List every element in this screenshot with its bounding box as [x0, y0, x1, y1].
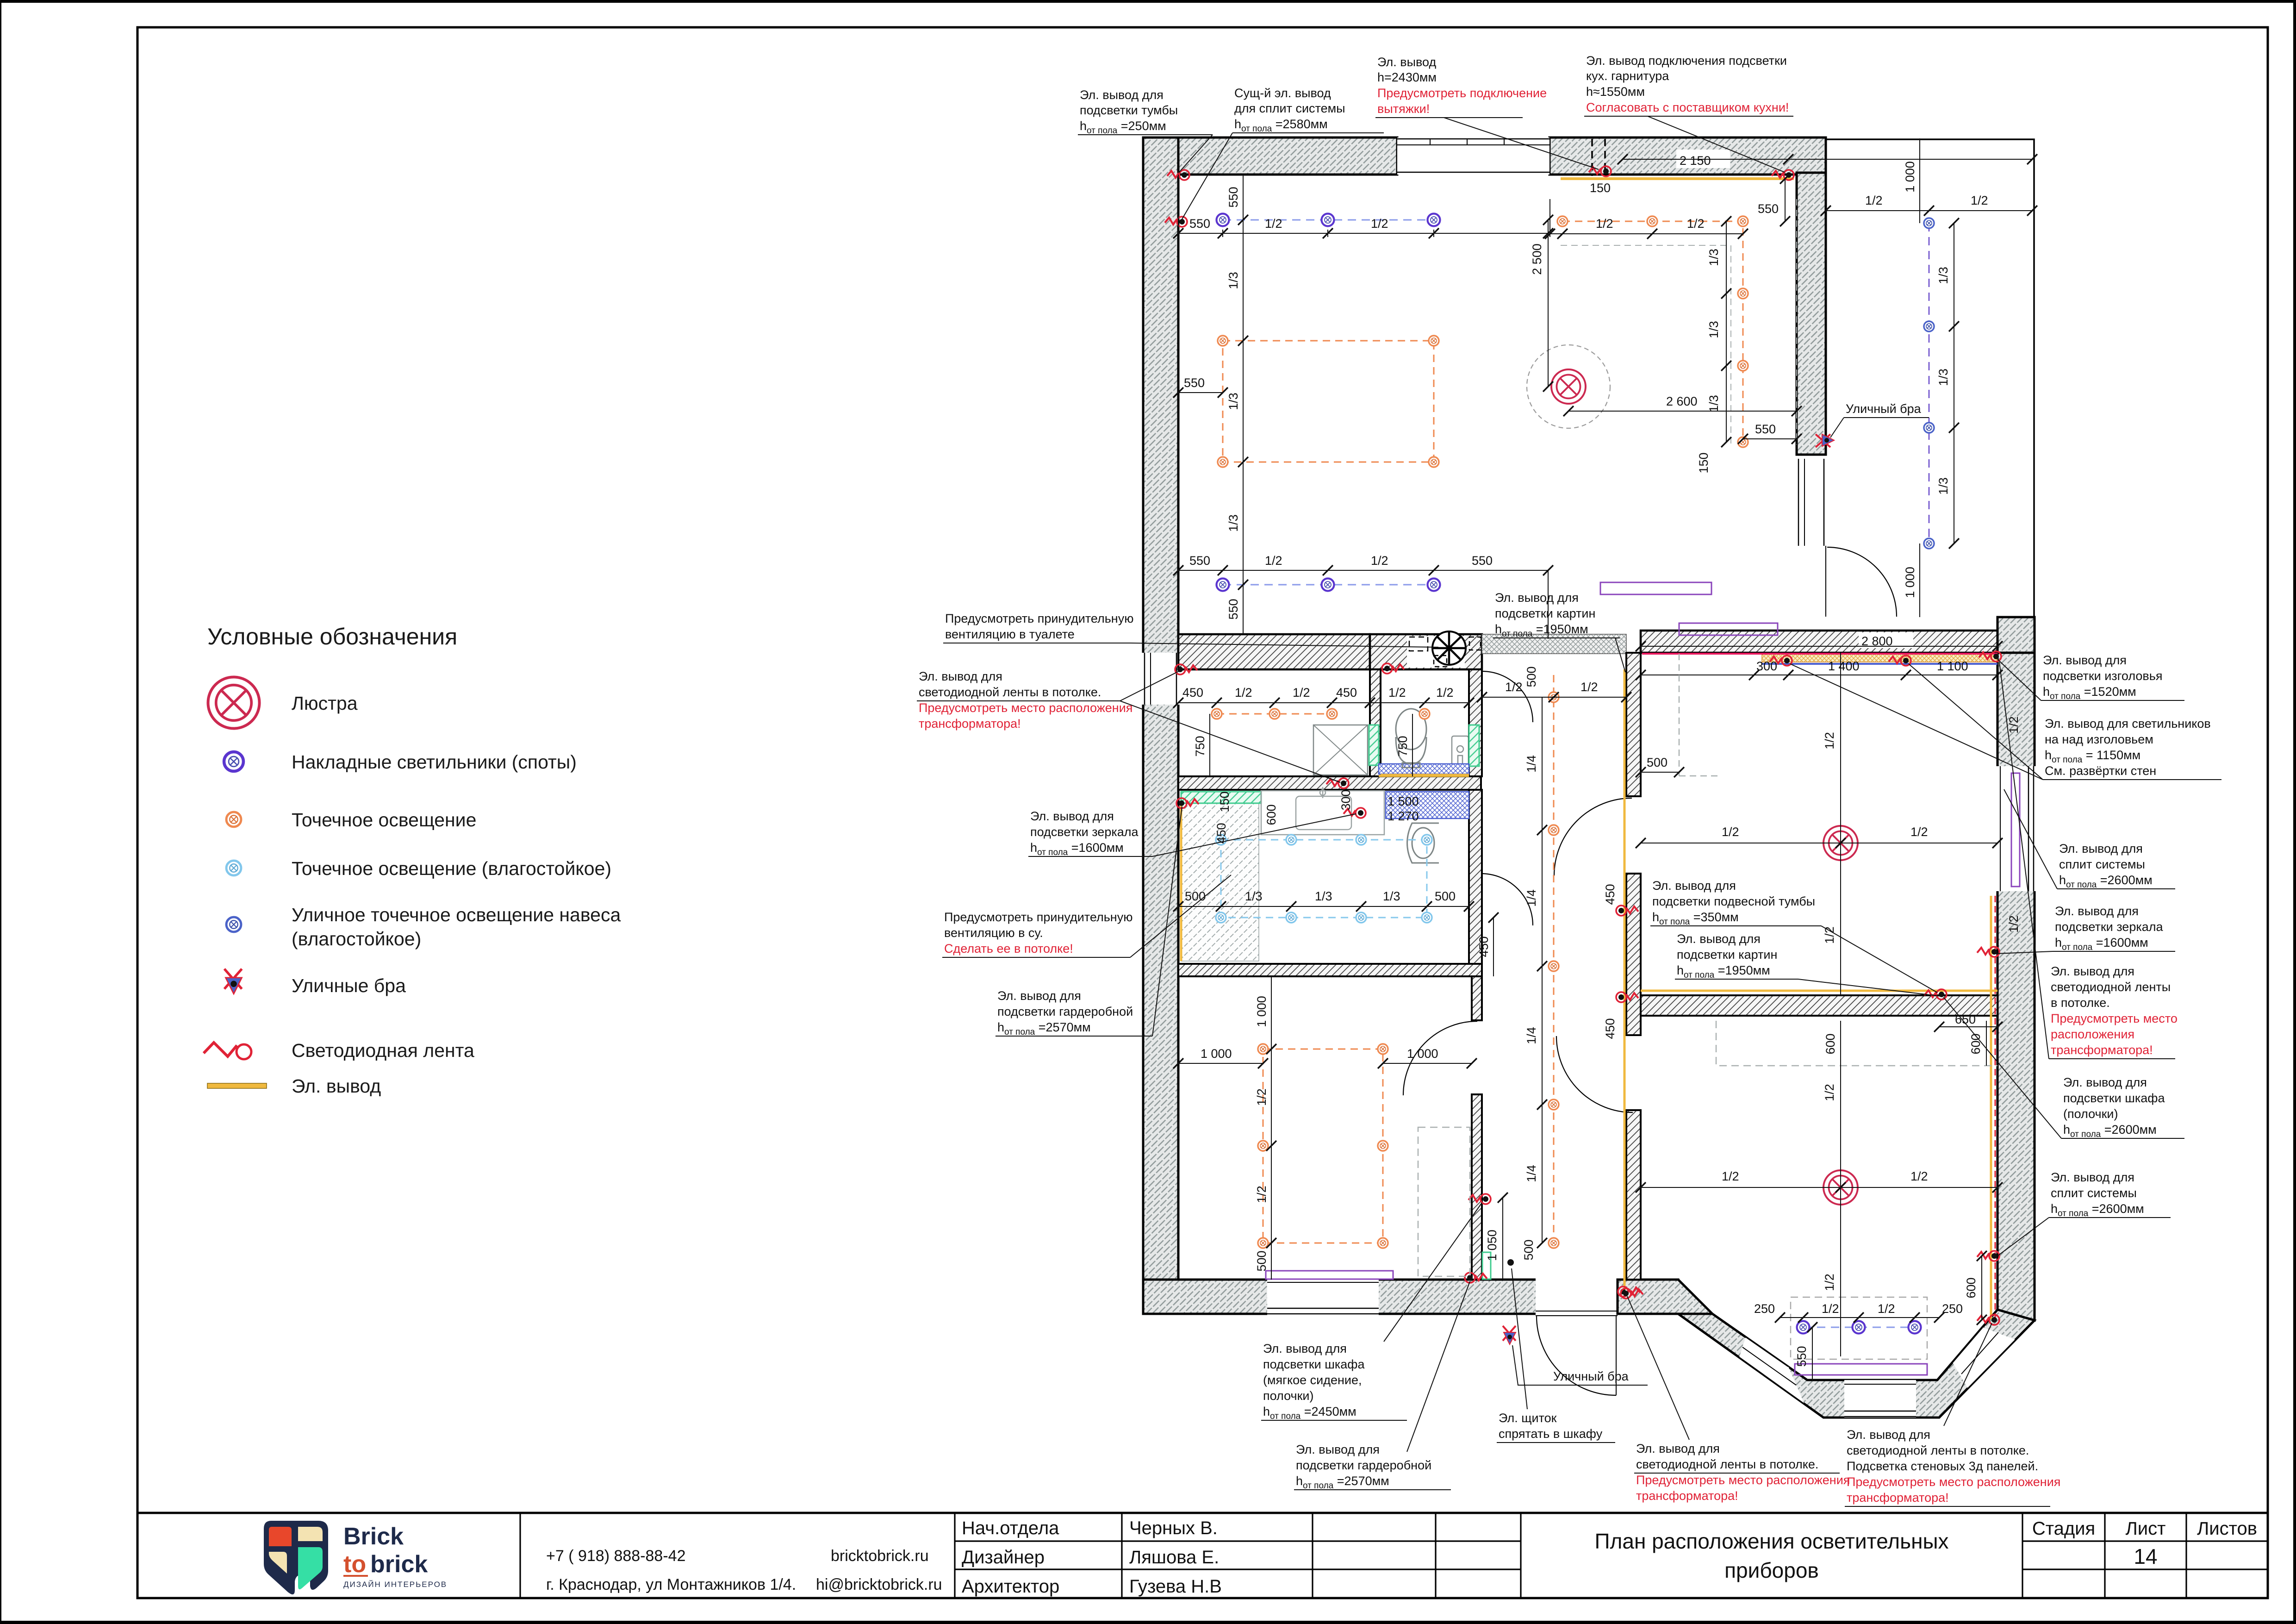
svg-text:Светодиодная лента: Светодиодная лента [292, 1040, 474, 1061]
svg-text:Эл. вывод для: Эл. вывод для [1652, 879, 1736, 893]
svg-text:150: 150 [1590, 181, 1611, 195]
svg-text:1 100: 1 100 [1937, 659, 1968, 673]
svg-text:Гузева Н.В: Гузева Н.В [1129, 1576, 1222, 1597]
svg-text:1/4: 1/4 [1524, 1027, 1538, 1044]
svg-text:на над изголовьем: на над изголовьем [2045, 732, 2153, 746]
svg-text:1/2: 1/2 [1265, 217, 1282, 231]
svg-text:Сущ-й эл. вывод: Сущ-й эл. вывод [1234, 86, 1331, 100]
svg-text:1/2: 1/2 [1971, 194, 1988, 207]
svg-text:500: 500 [1255, 1250, 1269, 1271]
svg-text:500: 500 [1435, 889, 1456, 903]
svg-text:300: 300 [1756, 659, 1777, 673]
svg-text:в потолке.: в потолке. [2051, 996, 2110, 1010]
svg-text:1 000: 1 000 [1201, 1047, 1232, 1061]
svg-text:Точечное освещение: Точечное освещение [292, 809, 476, 831]
svg-text:Листов: Листов [2197, 1518, 2257, 1539]
svg-text:1 000: 1 000 [1903, 161, 1917, 193]
svg-text:1/3: 1/3 [1707, 249, 1721, 266]
svg-text:ДИЗАЙН ИНТЕРЬЕРОВ: ДИЗАЙН ИНТЕРЬЕРОВ [343, 1580, 447, 1589]
svg-text:полочки): полочки) [1263, 1389, 1313, 1403]
svg-text:трансформатора!: трансформатора! [1847, 1491, 1949, 1505]
svg-text:Лист: Лист [2126, 1518, 2166, 1539]
svg-text:150: 150 [1697, 452, 1711, 473]
svg-text:Черных В.: Черных В. [1129, 1518, 1218, 1538]
svg-text:750: 750 [1396, 736, 1410, 756]
svg-text:500: 500 [1524, 666, 1538, 687]
svg-text:1 400: 1 400 [1828, 659, 1860, 673]
svg-text:1/2: 1/2 [1235, 686, 1252, 700]
svg-text:250: 250 [1942, 1302, 1963, 1316]
svg-text:трансформатора!: трансформатора! [919, 717, 1021, 731]
svg-text:Уличный бра: Уличный бра [1846, 402, 1922, 416]
svg-text:300: 300 [1339, 789, 1353, 810]
svg-text:1 500: 1 500 [1388, 794, 1419, 808]
svg-text:Точечное освещение (влагостойк: Точечное освещение (влагостойкое) [292, 858, 611, 879]
svg-text:Эл. вывод для светильников: Эл. вывод для светильников [2045, 717, 2211, 731]
svg-text:500: 500 [1522, 1239, 1536, 1260]
svg-text:2 800: 2 800 [1861, 634, 1893, 648]
svg-text:(мягкое сидение,: (мягкое сидение, [1263, 1373, 1362, 1387]
svg-text:(полочки): (полочки) [2063, 1107, 2118, 1121]
svg-text:1/2: 1/2 [1371, 217, 1388, 231]
svg-text:Эл. вывод для: Эл. вывод для [2063, 1075, 2147, 1089]
svg-text:1 270: 1 270 [1388, 809, 1419, 823]
svg-text:450: 450 [1477, 936, 1491, 957]
svg-text:brick: brick [370, 1551, 428, 1578]
svg-text:(влагостойкое): (влагостойкое) [292, 928, 421, 949]
svg-text:450: 450 [1336, 686, 1357, 700]
svg-text:450: 450 [1182, 686, 1203, 700]
svg-text:г. Краснодар, ул Монтажников: г. Краснодар, ул Монтажников 1/4. [546, 1576, 796, 1593]
svg-text:Уличные бра: Уличные бра [292, 975, 406, 996]
svg-text:1 050: 1 050 [1485, 1230, 1499, 1261]
svg-text:600: 600 [1969, 1033, 1983, 1054]
svg-text:Люстра: Люстра [292, 693, 358, 714]
svg-text:Эл. щиток: Эл. щиток [1499, 1411, 1557, 1425]
svg-text:Дизайнер: Дизайнер [962, 1547, 1045, 1568]
svg-text:подсветки подвесной тумбы: подсветки подвесной тумбы [1652, 894, 1815, 908]
svg-text:1/3: 1/3 [1936, 267, 1950, 284]
svg-text:1/2: 1/2 [2007, 716, 2021, 734]
svg-text:подсветки зеркала: подсветки зеркала [1030, 825, 1139, 839]
svg-text:1/2: 1/2 [1596, 217, 1613, 231]
svg-text:светодиодной ленты: светодиодной ленты [2051, 980, 2171, 994]
svg-text:вентиляцию в туалете: вентиляцию в туалете [945, 627, 1075, 641]
svg-text:Эл. вывод для: Эл. вывод для [1636, 1442, 1720, 1455]
svg-text:сплит системы: сплит системы [2059, 857, 2145, 871]
svg-text:500: 500 [1647, 756, 1668, 769]
svg-text:сплит системы: сплит системы [2051, 1186, 2137, 1200]
svg-text:1/2: 1/2 [1436, 686, 1454, 700]
svg-text:1/3: 1/3 [1226, 272, 1240, 289]
svg-text:1/2: 1/2 [1265, 554, 1282, 568]
svg-text:Эл. вывод для: Эл. вывод для [2055, 904, 2139, 918]
svg-text:Brick: Brick [343, 1523, 404, 1550]
svg-text:Эл. вывод для: Эл. вывод для [1030, 809, 1114, 823]
svg-text:150: 150 [1218, 791, 1232, 812]
svg-text:550: 550 [1184, 376, 1205, 390]
svg-text:1/2: 1/2 [1822, 1302, 1839, 1316]
svg-text:550: 550 [1472, 554, 1493, 568]
svg-text:hi@bricktobrick.ru: hi@bricktobrick.ru [816, 1576, 942, 1593]
svg-text:План расположения осветительны: План расположения осветительных [1594, 1529, 1948, 1553]
svg-text:подсветки шкафа: подсветки шкафа [1263, 1357, 1365, 1371]
svg-text:Предусмотреть место расположен: Предусмотреть место расположения [919, 701, 1132, 715]
svg-text:1/2: 1/2 [1823, 1084, 1836, 1101]
svg-text:Эл. вывод для: Эл. вывод для [2043, 653, 2127, 667]
svg-text:1 000: 1 000 [1407, 1047, 1438, 1061]
svg-text:вентиляцию в су.: вентиляцию в су. [944, 926, 1043, 940]
svg-text:1/2: 1/2 [1505, 680, 1523, 694]
svg-text:450: 450 [1603, 884, 1617, 905]
svg-text:подсветки гардеробной: подсветки гардеробной [1296, 1458, 1431, 1472]
svg-text:1/3: 1/3 [1936, 477, 1950, 495]
svg-text:Эл. вывод для: Эл. вывод для [1080, 88, 1164, 102]
svg-text:Предусмотреть принудительную: Предусмотреть принудительную [945, 612, 1133, 625]
svg-text:трансформатора!: трансформатора! [1636, 1489, 1738, 1503]
svg-text:250: 250 [1754, 1302, 1775, 1316]
svg-text:600: 600 [1964, 1277, 1978, 1298]
svg-text:Эл. вывод для: Эл. вывод для [1495, 591, 1579, 605]
svg-text:Предусмотреть место: Предусмотреть место [2051, 1012, 2178, 1025]
svg-text:1/2: 1/2 [1722, 1169, 1739, 1183]
svg-text:Эл. вывод: Эл. вывод [1377, 55, 1436, 69]
svg-text:спрятать в шкафу: спрятать в шкафу [1499, 1427, 1603, 1441]
svg-text:Эл. вывод: Эл. вывод [292, 1075, 381, 1097]
svg-text:Архитектор: Архитектор [962, 1576, 1059, 1597]
svg-text:светодиодной ленты в потолке.: светодиодной ленты в потолке. [1636, 1457, 1818, 1471]
svg-text:bricktobrick.ru: bricktobrick.ru [831, 1547, 929, 1565]
svg-text:550: 550 [1755, 422, 1776, 436]
svg-text:550: 550 [1795, 1346, 1809, 1367]
svg-text:Эл. вывод для: Эл. вывод для [1677, 932, 1761, 946]
svg-text:550: 550 [1189, 217, 1210, 231]
svg-text:кух. гарнитура: кух. гарнитура [1586, 69, 1669, 83]
svg-text:1/3: 1/3 [1707, 395, 1721, 412]
svg-text:1/2: 1/2 [1580, 680, 1598, 694]
svg-text:h≈1550мм: h≈1550мм [1586, 85, 1645, 99]
svg-text:550: 550 [1758, 202, 1779, 216]
svg-text:+7 ( 918) 888-88-42: +7 ( 918) 888-88-42 [546, 1547, 685, 1565]
svg-text:750: 750 [1193, 736, 1207, 756]
svg-text:1/2: 1/2 [2007, 915, 2021, 933]
svg-text:1/3: 1/3 [1383, 889, 1400, 903]
svg-text:Накладные светильники (споты): Накладные светильники (споты) [292, 751, 577, 773]
svg-text:550: 550 [1226, 599, 1240, 619]
svg-text:2 600: 2 600 [1666, 394, 1698, 408]
svg-text:Предусмотреть место расположен: Предусмотреть место расположения [1636, 1473, 1850, 1487]
svg-text:подсветки гардеробной: подсветки гардеробной [997, 1005, 1133, 1018]
svg-text:расположения: расположения [2051, 1027, 2134, 1041]
svg-text:1/2: 1/2 [1823, 1274, 1836, 1291]
svg-text:Предусмотреть подключение: Предусмотреть подключение [1377, 86, 1547, 100]
svg-text:вытяжки!: вытяжки! [1377, 102, 1430, 116]
svg-text:подсветки шкафа: подсветки шкафа [2063, 1091, 2165, 1105]
svg-text:Эл. вывод для: Эл. вывод для [1296, 1443, 1380, 1456]
svg-text:1/2: 1/2 [1878, 1302, 1895, 1316]
svg-text:1/2: 1/2 [1910, 825, 1928, 839]
svg-text:1/3: 1/3 [1707, 321, 1721, 338]
svg-text:1/4: 1/4 [1524, 889, 1538, 907]
svg-text:трансформатора!: трансформатора! [2051, 1043, 2153, 1057]
svg-text:подсветки изголовья: подсветки изголовья [2043, 669, 2162, 683]
svg-text:550: 550 [1226, 187, 1240, 207]
svg-text:Эл. вывод для: Эл. вывод для [1263, 1342, 1347, 1355]
svg-text:450: 450 [1603, 1018, 1617, 1039]
svg-text:светодиодной ленты в потолке.: светодиодной ленты в потолке. [919, 685, 1101, 699]
svg-text:Эл. вывод для: Эл. вывод для [2059, 842, 2143, 856]
svg-text:Эл. вывод подключения подсветк: Эл. вывод подключения подсветки [1586, 54, 1787, 68]
svg-text:1/4: 1/4 [1524, 755, 1538, 773]
svg-text:1 000: 1 000 [1903, 567, 1917, 598]
svg-text:Подсветка стеновых 3д панелей.: Подсветка стеновых 3д панелей. [1847, 1459, 2038, 1473]
svg-text:1/2: 1/2 [1388, 686, 1406, 700]
svg-text:1/2: 1/2 [1823, 926, 1836, 944]
svg-text:1/2: 1/2 [1255, 1088, 1269, 1106]
svg-text:Эл. вывод для: Эл. вывод для [919, 669, 1002, 683]
svg-text:1/2: 1/2 [1255, 1186, 1269, 1203]
svg-text:Уличный бра: Уличный бра [1553, 1369, 1629, 1383]
svg-text:1/2: 1/2 [1687, 217, 1705, 231]
svg-text:1/4: 1/4 [1524, 1165, 1538, 1182]
svg-text:1/3: 1/3 [1936, 369, 1950, 386]
svg-text:Стадия: Стадия [2032, 1518, 2095, 1539]
svg-text:14: 14 [2134, 1544, 2157, 1568]
svg-text:1/2: 1/2 [1865, 194, 1883, 207]
svg-text:2 500: 2 500 [1530, 244, 1544, 275]
svg-text:1 000: 1 000 [1255, 996, 1269, 1027]
svg-text:1/3: 1/3 [1315, 889, 1332, 903]
svg-text:Нач.отдела: Нач.отдела [962, 1518, 1059, 1538]
svg-text:1/3: 1/3 [1226, 393, 1240, 410]
svg-text:1/2: 1/2 [1823, 732, 1836, 750]
svg-text:светодиодной ленты в потолке.: светодиодной ленты в потолке. [1847, 1443, 2029, 1457]
svg-text:Ляшова Е.: Ляшова Е. [1129, 1547, 1219, 1568]
svg-text:Согласовать с поставщиком кухн: Согласовать с поставщиком кухни! [1586, 100, 1789, 114]
svg-text:to: to [343, 1551, 366, 1578]
svg-text:Предусмотреть принудительную: Предусмотреть принудительную [944, 910, 1132, 924]
svg-text:1/2: 1/2 [1722, 825, 1739, 839]
svg-text:1/2: 1/2 [1910, 1169, 1928, 1183]
svg-text:подсветки картин: подсветки картин [1495, 606, 1595, 620]
svg-text:подсветки картин: подсветки картин [1677, 948, 1777, 962]
svg-text:Эл. вывод для: Эл. вывод для [997, 989, 1081, 1003]
svg-text:Эл. вывод для: Эл. вывод для [2051, 964, 2134, 978]
svg-text:600: 600 [1823, 1033, 1837, 1054]
svg-text:подсветки тумбы: подсветки тумбы [1080, 103, 1178, 117]
svg-text:600: 600 [1264, 804, 1278, 825]
svg-text:1/2: 1/2 [1293, 686, 1310, 700]
svg-text:для сплит системы: для сплит системы [1234, 101, 1345, 115]
svg-text:1/3: 1/3 [1245, 889, 1263, 903]
svg-text:550: 550 [1189, 554, 1210, 568]
svg-text:Предусмотреть место расположен: Предусмотреть место расположения [1847, 1475, 2060, 1489]
svg-text:Эл. вывод для: Эл. вывод для [1847, 1428, 1930, 1442]
svg-text:приборов: приборов [1724, 1558, 1819, 1582]
svg-text:500: 500 [1185, 889, 1206, 903]
svg-text:подсветки зеркала: подсветки зеркала [2055, 920, 2164, 934]
svg-text:Уличное точечное освещение нав: Уличное точечное освещение навеса [292, 904, 621, 925]
svg-text:1/3: 1/3 [1226, 514, 1240, 532]
svg-text:1/2: 1/2 [1371, 554, 1388, 568]
svg-text:Эл. вывод для: Эл. вывод для [2051, 1170, 2134, 1184]
svg-text:Условные обозначения: Условные обозначения [207, 624, 457, 650]
svg-text:h=2430мм: h=2430мм [1377, 70, 1437, 84]
svg-text:Сделать ее в потолке!: Сделать ее в потолке! [944, 942, 1073, 956]
svg-text:2 150: 2 150 [1680, 154, 1711, 168]
svg-text:См. развёртки стен: См. развёртки стен [2045, 764, 2156, 778]
